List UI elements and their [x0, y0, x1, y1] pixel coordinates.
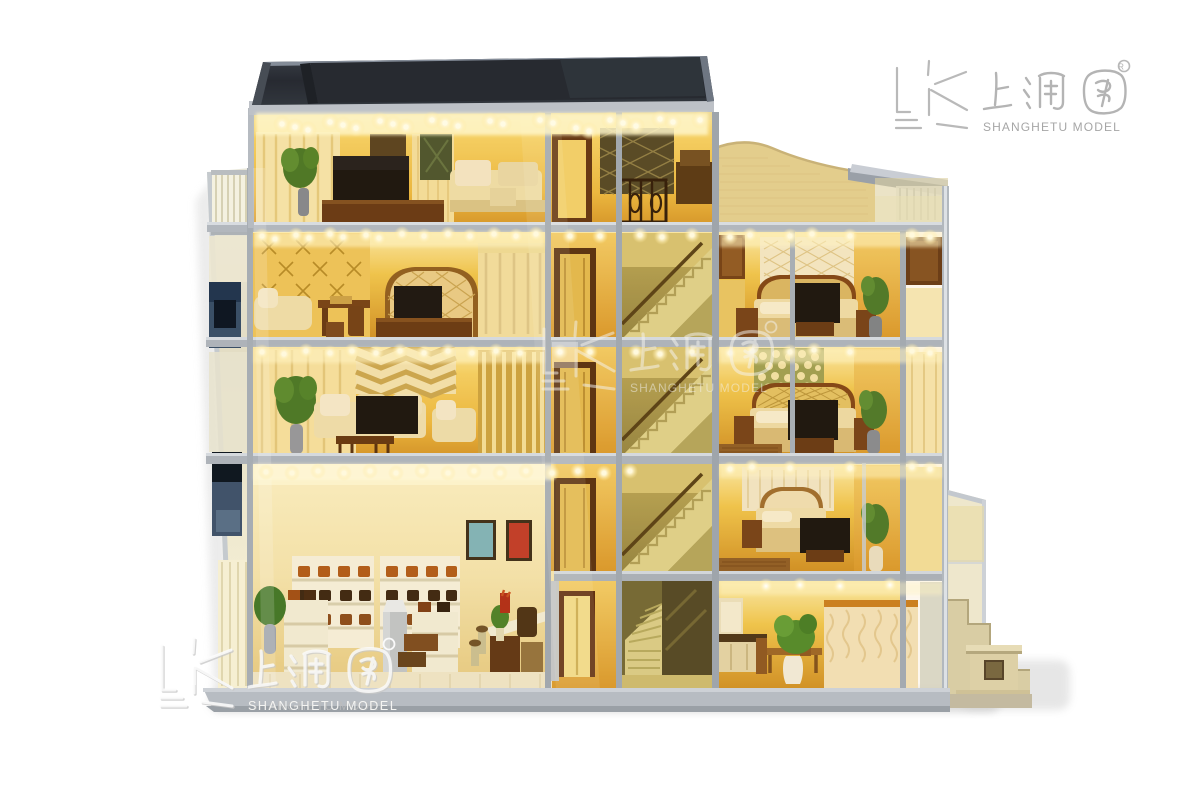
svg-text:SHANGHETU MODEL: SHANGHETU MODEL — [983, 120, 1121, 134]
svg-text:SHANGHETU MODEL: SHANGHETU MODEL — [248, 699, 398, 713]
svg-text:R: R — [1118, 63, 1124, 72]
svg-text:SHANGHETU MODEL: SHANGHETU MODEL — [630, 381, 768, 395]
